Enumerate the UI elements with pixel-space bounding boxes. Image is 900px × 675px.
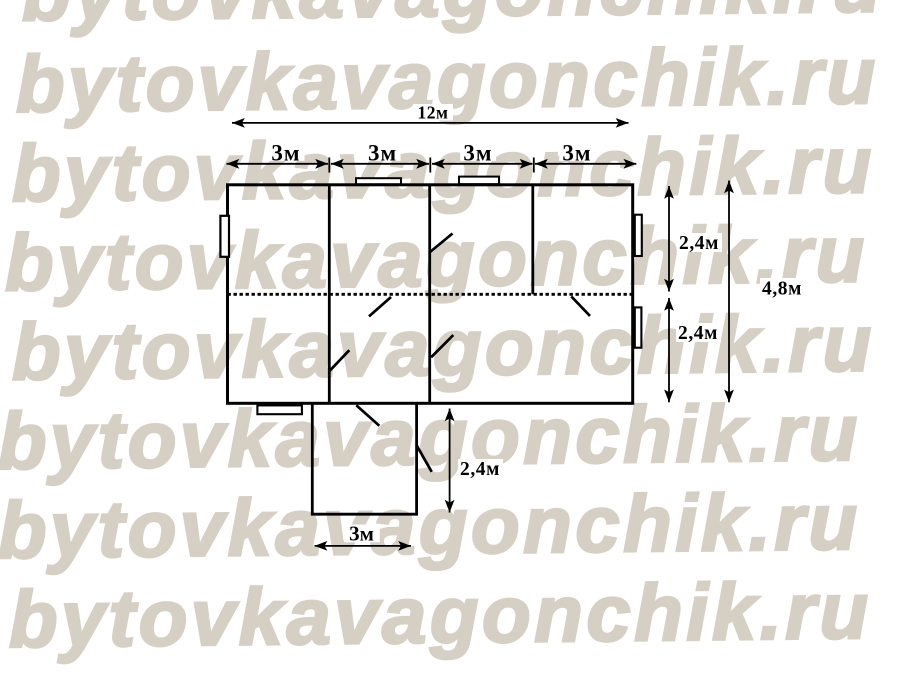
svg-text:4,8м: 4,8м	[762, 279, 802, 300]
svg-text:3м: 3м	[562, 141, 591, 166]
svg-text:bytovkavagonchik.ru: bytovkavagonchik.ru	[4, 209, 868, 307]
svg-text:3м: 3м	[368, 141, 397, 166]
svg-text:bytovkavagonchik.ru: bytovkavagonchik.ru	[0, 477, 861, 575]
svg-text:3м: 3м	[271, 141, 300, 166]
svg-text:3м: 3м	[463, 141, 492, 166]
svg-text:2,4м: 2,4м	[678, 323, 718, 344]
svg-text:3м: 3м	[349, 522, 374, 546]
svg-text:2,4м: 2,4м	[679, 233, 719, 254]
svg-text:12м: 12м	[418, 103, 449, 123]
svg-text:2,4м: 2,4м	[460, 459, 500, 480]
svg-text:bytovkavagonchik.ru: bytovkavagonchik.ru	[8, 566, 872, 664]
svg-text:bytovkavagonchik.ru: bytovkavagonchik.ru	[11, 298, 875, 396]
svg-text:bytovkavagonchik.ru: bytovkavagonchik.ru	[11, 120, 875, 218]
